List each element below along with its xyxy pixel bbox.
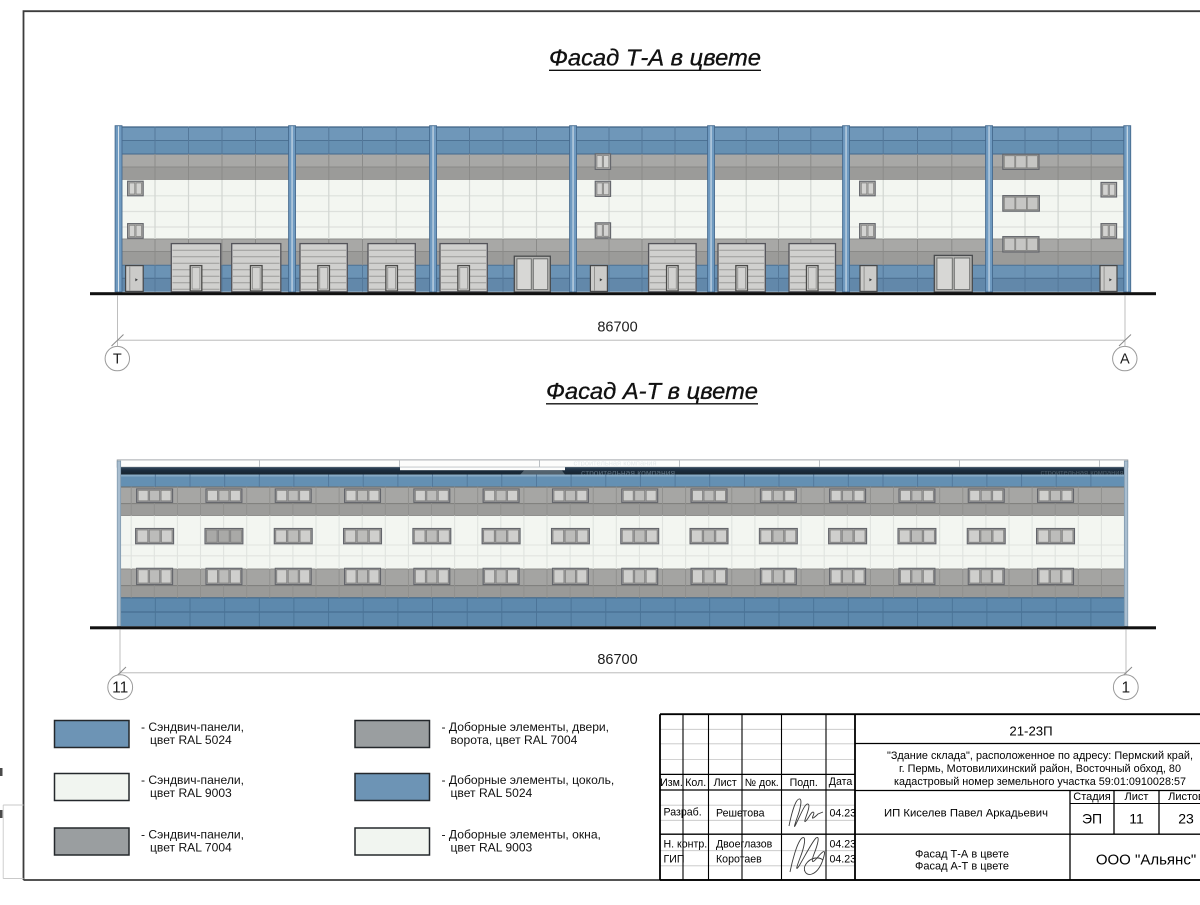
svg-text:ворота, цвет RAL 7004: ворота, цвет RAL 7004 [451,733,578,747]
svg-text:11: 11 [112,680,128,697]
svg-text:цвет RAL 7004: цвет RAL 7004 [150,841,232,855]
svg-text:Стадия: Стадия [1073,791,1111,803]
svg-text:04.23: 04.23 [830,839,857,851]
svg-text:- Доборные элементы, цоколь,: - Доборные элементы, цоколь, [442,773,615,787]
svg-text:А: А [1120,352,1130,368]
svg-text:Коротаев: Коротаев [716,854,762,866]
svg-text:04.23: 04.23 [830,808,857,820]
svg-text:Фасад Т-А в цвете: Фасад Т-А в цвете [549,45,761,71]
svg-text:№ док.: № док. [745,777,779,789]
svg-text:86700: 86700 [597,652,637,668]
svg-text:23: 23 [1178,811,1194,827]
svg-text:- Сэндвич-панели,: - Сэндвич-панели, [141,773,244,787]
svg-text:Лист: Лист [714,777,737,789]
svg-text:- Доборные элементы, двери,: - Доборные элементы, двери, [442,720,610,734]
svg-text:кадастровый номер земельного у: кадастровый номер земельного участка 59:… [894,776,1186,788]
svg-text:Дата: Дата [829,776,853,788]
svg-text:1: 1 [1121,680,1130,697]
svg-text:Фасад А-Т в цвете: Фасад А-Т в цвете [546,378,758,404]
svg-text:Листов: Листов [1168,791,1200,803]
svg-text:ООО "Альянс": ООО "Альянс" [1096,852,1196,869]
svg-text:Лист: Лист [1125,791,1149,803]
svg-text:86700: 86700 [597,320,637,336]
svg-text:ГИП: ГИП [664,854,685,866]
svg-text:цвет RAL 5024: цвет RAL 5024 [150,733,232,747]
svg-text:"Здание склада", расположенное: "Здание склада", расположенное по адресу… [887,750,1193,762]
svg-text:21-23П: 21-23П [1009,724,1052,739]
svg-text:Кол.: Кол. [685,777,706,789]
svg-text:11: 11 [1129,811,1144,827]
svg-text:- Сэндвич-панели,: - Сэндвич-панели, [141,827,244,841]
svg-text:Фасад А-Т в цвете: Фасад А-Т в цвете [915,861,1009,873]
svg-text:Двоеглазов: Двоеглазов [716,839,773,851]
svg-text:04.23: 04.23 [830,854,857,866]
svg-text:- Сэндвич-панели,: - Сэндвич-панели, [141,720,244,734]
svg-text:цвет RAL 9003: цвет RAL 9003 [150,786,232,800]
svg-text:- Доборные элементы, окна,: - Доборные элементы, окна, [442,827,601,841]
svg-text:строительная компания: строительная компания [573,459,656,468]
svg-text:цвет RAL 9003: цвет RAL 9003 [451,841,533,855]
svg-text:Н. контр.: Н. контр. [664,839,708,851]
svg-text:Подп.: Подп. [790,777,818,789]
svg-text:Т: Т [113,352,122,368]
svg-text:Изм.: Изм. [660,777,683,789]
svg-text:цвет RAL 5024: цвет RAL 5024 [451,786,533,800]
svg-text:ИП Киселев Павел Аркадьевич: ИП Киселев Павел Аркадьевич [884,808,1048,820]
svg-text:ЭП: ЭП [1082,811,1102,827]
svg-text:г. Пермь, Мотовилихинский райо: г. Пермь, Мотовилихинский район, Восточн… [899,763,1181,775]
svg-text:Решетова: Решетова [716,808,765,820]
svg-text:Фасад Т-А в цвете: Фасад Т-А в цвете [915,849,1009,861]
svg-text:Разраб.: Разраб. [664,807,702,819]
